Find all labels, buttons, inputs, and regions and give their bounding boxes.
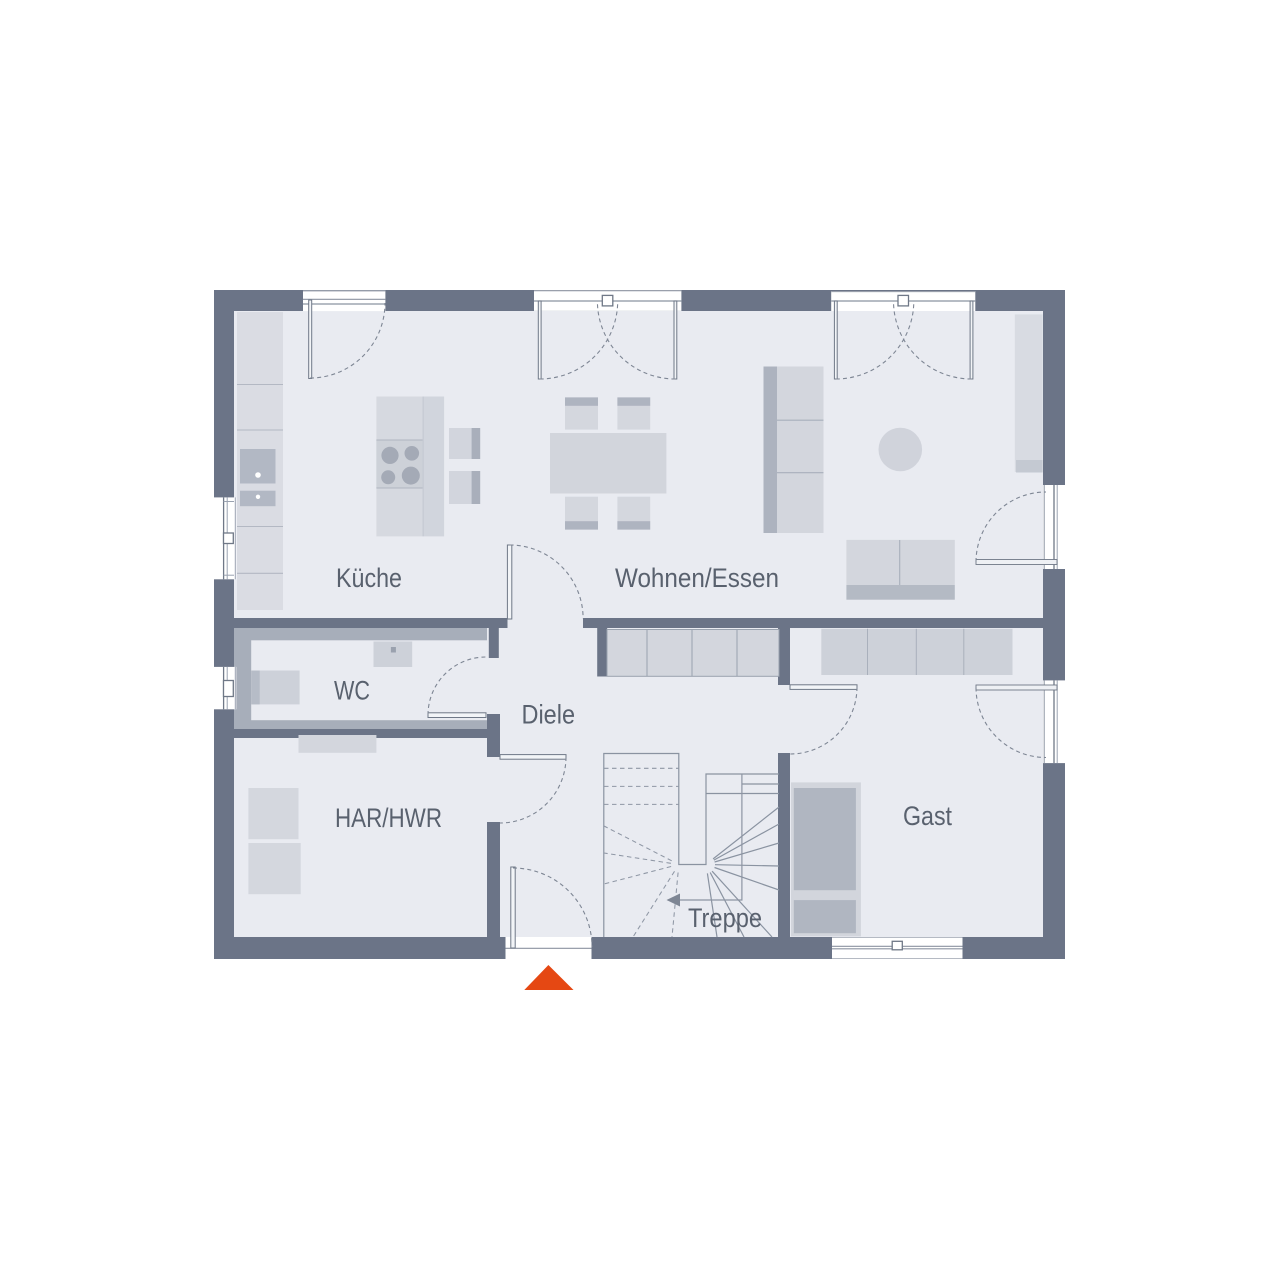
svg-text:Treppe: Treppe [688, 903, 762, 933]
svg-text:HAR/HWR: HAR/HWR [335, 803, 442, 833]
svg-text:Diele: Diele [522, 700, 576, 730]
svg-text:Wohnen/Essen: Wohnen/Essen [615, 563, 779, 593]
svg-text:Küche: Küche [336, 563, 402, 593]
svg-text:Gast: Gast [903, 801, 952, 831]
svg-text:WC: WC [334, 676, 370, 706]
